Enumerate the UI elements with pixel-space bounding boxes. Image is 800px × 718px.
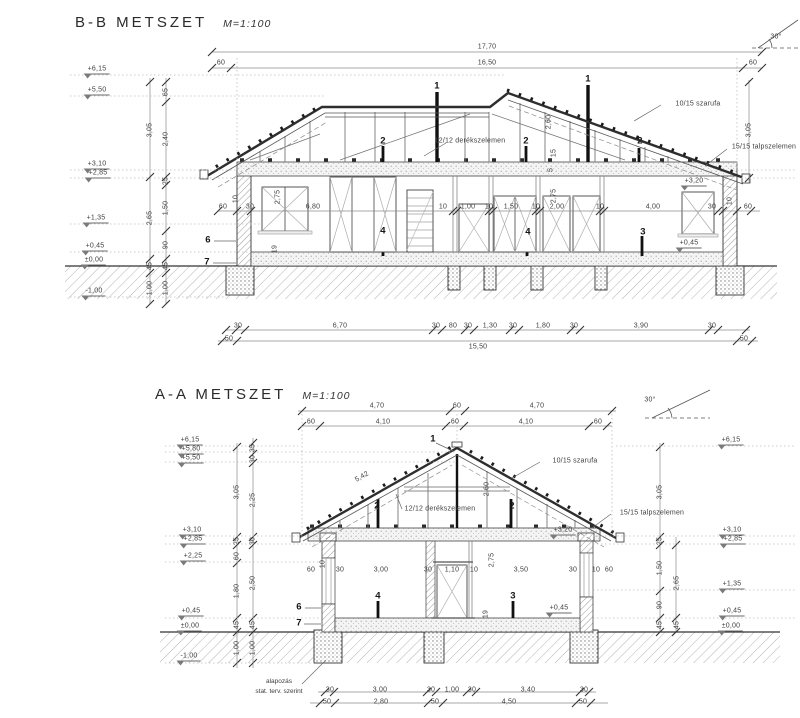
dim-label: 25 [234,537,241,545]
level-label: +6,15 [719,437,744,446]
wall-plate-label: 15/15 talpszelemen [620,510,684,517]
marker-label: 4 [375,591,380,601]
dim-label: 30 [250,455,257,463]
dim-label: 50 [431,699,439,706]
dim-label: 3,05 [657,485,664,499]
dim-label: 4,70 [370,403,384,410]
dim-label: 10 [320,560,327,568]
dim-label: 90 [657,601,664,609]
level-label: +3,20 [551,527,576,536]
dim-label: 19 [483,610,490,618]
dim-label: 30 [580,687,588,694]
level-label: +6,15 [178,437,203,446]
dim-label: 45 [674,621,681,629]
dim-label: 2,75 [489,553,496,567]
dim-label: 60 [307,567,315,574]
dim-label: 60 [453,403,461,410]
level-label: +0,45 [720,608,745,617]
level-label: +2,25 [181,553,206,562]
dim-label: 1,10 [445,567,459,574]
level-label: +0,45 [547,605,572,614]
dim-label: 30 [326,687,334,694]
level-label: ±0,00 [719,623,743,632]
dim-label: 60 [605,567,613,574]
level-label: +2,85 [721,536,746,545]
dim-label: 4,50 [502,699,516,706]
dim-label: 1,80 [234,584,241,598]
level-label: +3,10 [720,527,745,536]
dim-label: 1,50 [657,561,664,575]
dim-label: 60 [307,419,315,426]
dim-label: 30 [468,687,476,694]
dim-label: 10 [470,567,478,574]
dim-label: 45 [234,621,241,629]
dim-label: 4,10 [376,419,390,426]
dim-label: 60 [451,419,459,426]
aa-labels-layer: 4,70604,70604,10604,106030°+6,15+5,80+5,… [0,0,800,718]
dim-label: 45 [250,621,257,629]
dim-label: 30 [427,687,435,694]
level-label: ±0,00 [178,623,202,632]
dim-label: 2,65 [674,576,681,590]
dim-label: 2,25 [250,493,257,507]
dim-label: 25 [657,537,664,545]
marker-label: 2 [509,501,514,511]
dim-label: 1,00 [445,687,459,694]
level-label: +1,35 [720,581,745,590]
dim-label: 50 [323,699,331,706]
dim-label: 3,05 [234,485,241,499]
drawing-sheet: B-B METSZETM=1:100 A-A METSZETM=1:100 al… [0,0,800,718]
marker-label: 3 [510,591,515,601]
rafter-label: 10/15 szarufa [552,458,597,465]
dim-label: 30 [424,567,432,574]
dim-label: 5,42 [354,470,370,483]
dim-label: 2,60 [484,482,491,496]
dim-label: 3,40 [521,687,535,694]
dim-label: 60 [594,419,602,426]
level-label: +2,85 [181,536,206,545]
dim-label: 1,00 [250,641,257,655]
dim-label: 10 [592,567,600,574]
dim-label: 4,70 [530,403,544,410]
roof-pitch-label: 30° [644,397,655,404]
dim-label: 3,00 [373,687,387,694]
dim-label: 3,00 [374,567,388,574]
level-label: +5,80 [179,446,204,455]
dim-label: 60 [234,552,241,560]
dim-label: 30 [336,567,344,574]
dim-label: 3,50 [514,567,528,574]
dim-label: 2,50 [250,576,257,590]
marker-label: 2 [374,501,379,511]
dim-label: 4,10 [519,419,533,426]
dim-label: 45 [657,621,664,629]
dim-label: 35 [250,444,257,452]
dim-label: 30 [569,567,577,574]
marker-label: 6 [296,602,301,612]
dim-label: 50 [579,699,587,706]
marker-label: 7 [296,618,301,628]
dim-label: 2,80 [374,699,388,706]
purlin-label: 12/12 derékszelemen [405,506,476,513]
level-label: +5,50 [179,455,204,464]
level-label: +3,10 [180,527,205,536]
dim-label: 1,00 [234,641,241,655]
level-label: +0,45 [179,608,204,617]
level-label: -1,00 [178,653,201,662]
dim-label: 30 [250,537,257,545]
marker-label: 1 [430,434,435,444]
